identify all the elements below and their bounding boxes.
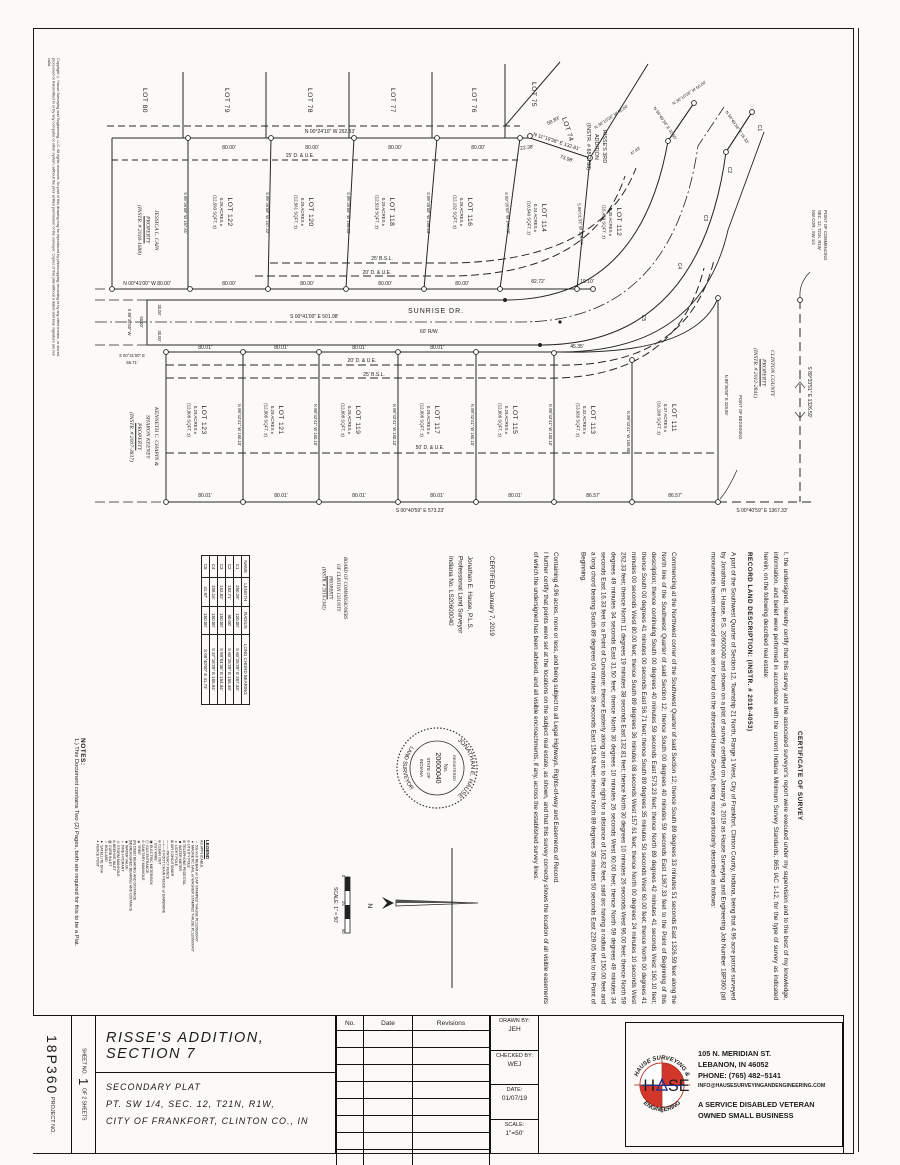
legend-item-label: GAS ENTRANCE [145, 845, 149, 873]
legend-item-label: TREE [137, 845, 141, 855]
street-bearing: S 00°41'00" E 501.98' [290, 314, 339, 320]
pob-label: POINT OF BEGINNING [738, 395, 743, 439]
dim: 80.01' [274, 493, 288, 499]
side-bearing: N 89°42'41" W 160.10' [313, 404, 318, 446]
neighbor-lot: LOT 77 [389, 88, 396, 113]
legend-symbol-icon: ▣ [149, 840, 153, 844]
risses-3rd-addition-label: RISSE'S 3RD ADDITION (INSTR. # 68-2788) [572, 92, 608, 202]
curve-length: 182.71' [226, 578, 234, 607]
date-cell: DATE:01/07/19 [491, 1085, 538, 1120]
easement-label: 15' D. & U.E. [286, 153, 315, 159]
legend-symbol-icon: ▼ [100, 840, 104, 844]
plat-sheet: Copyright © Hause Surveying and Engineer… [0, 0, 900, 1165]
street-name: SUNRISE DR. [408, 308, 464, 315]
sheet-label: SHEET NO. [81, 1048, 87, 1075]
revision-row [337, 1116, 490, 1133]
legend-item-label: ELECTRIC METER/BOX [149, 845, 153, 885]
dim: 47.83' [629, 145, 641, 156]
lot-number: LOT 111 [670, 404, 677, 432]
neighbor-lot: LOT 76 [470, 88, 477, 113]
dim: 58.83' [546, 115, 561, 127]
lot-sqft: (15,459 SQFT. ±) [602, 205, 607, 239]
side-bearing: S 89°36'08" W 156.83' [346, 192, 351, 234]
legend-symbol-icon: ⁕ [96, 840, 100, 843]
upper-lot-labels: LOT 1220.28 ACRES ±(12,593 SQFT. ±) LOT … [213, 195, 623, 239]
legend-item: —+— 6 FOOT CHAIN FENCE w/ BARBWIRE [161, 840, 165, 972]
hause-logo-icon: HAUSE SURVEYING & ENGINEERING H SE [628, 1051, 696, 1119]
company-logo: HAUSE SURVEYING & ENGINEERING H SE [626, 1051, 698, 1119]
scale-label: SCALE: 1" = 50' [332, 887, 338, 923]
lot-sqft: (12,808 SQFT. ±) [264, 403, 269, 437]
company-street: 105 N. MERIDIAN ST. [698, 1048, 838, 1059]
drawing-location-1: PT. SW 1/4, SEC. 12, T21N, R1W, [106, 1096, 335, 1113]
rev-header-revisions: Revisions [413, 1016, 490, 1031]
curve-radius: 150.00' [202, 607, 210, 634]
lot-acres: 0.29 ACRES ± [347, 406, 352, 435]
curve-chord: S 60°25'28" E 207.33' [234, 634, 242, 705]
legend-item: ◫ GAS ENTRANCE [145, 840, 149, 972]
legend-item: ⊠ AIR CONDITIONER [170, 840, 174, 972]
drawn-by: JEH [491, 1026, 538, 1033]
lot-acres: 0.35 ACRES ± [608, 208, 613, 237]
legend-item-label: UTILITY POLE [186, 844, 190, 868]
curve-name: C4 [210, 556, 218, 578]
dim: 82.72' [531, 279, 545, 285]
dim: 80.00' [471, 145, 485, 151]
dim: 19.10' [580, 279, 594, 285]
dim: 80.00' [222, 281, 236, 287]
legend-item-label: BEEHIVE INLET [112, 844, 116, 871]
legend-item: (M) MEASURED BEARING AND DISTANCE [128, 840, 132, 972]
dim: N 59°49'34" E 16.33' [724, 110, 750, 145]
containing-certify: Containing 4.96 acres, more or less, and… [498, 552, 560, 1004]
legend-item: ◙ WATER METER [178, 840, 182, 972]
dim: 80.01' [198, 493, 212, 499]
legend-symbol-icon: ○ [195, 840, 199, 844]
legend-symbol-icon: ⊙ [141, 840, 145, 843]
lot-acres: 0.29 ACRES ± [381, 198, 386, 227]
board-of-commissioners-label: BOARD OF COMMISSIONERS OF CLINTON COUNTY… [310, 532, 348, 644]
top-dimensions: N 00°24'10" W 262.33' 80.00' 80.00' 80.0… [222, 115, 580, 276]
lot-sqft: (13,936 SQFT. ±) [576, 403, 581, 437]
legend-item-label: SANITARY MANHOLE [141, 844, 145, 880]
lot-number: LOT 122 [226, 197, 233, 226]
rev-header-no: No. [337, 1016, 364, 1031]
seal-number: 20600040 [434, 752, 441, 783]
legend-item: ▼ SATELLITE DISH [100, 840, 104, 972]
dim: 60.00' [139, 316, 144, 327]
seal-title: LAND SURVEYOR [401, 745, 414, 792]
legend-item-label: WATER METER [178, 845, 182, 871]
curve-length: 41.97' [202, 578, 210, 607]
owner-jessica-cain: JESSICA L. CAIN PROPERTY (INSTR. # 2018-… [126, 160, 160, 300]
legend-symbol-icon: ● [190, 840, 194, 844]
curve-chord: S 08°40'00" E 41.73' [202, 634, 210, 705]
revision-row [337, 1133, 490, 1150]
drawing-subtitle: SECONDARY PLAT [106, 1079, 335, 1096]
curve-length: 162.82' [218, 578, 226, 607]
neighbor-lot: LOT 79 [223, 88, 230, 113]
side-bearing: S 89°36'08" W 157.22' [265, 192, 270, 234]
revisions-table: No. Date Revisions [336, 1016, 491, 1153]
revision-row [337, 1150, 490, 1165]
record-description-title: RECORD LAND DESCRIPTION: (INSTR. # 2018-… [744, 552, 754, 1000]
legend-item-label: MEASURED BEARING AND DISTANCE [129, 846, 133, 911]
certificate-paragraph: I, the undersigned, hereby certify that … [760, 552, 790, 1000]
lot-number: LOT 113 [589, 406, 596, 435]
lower-top-dimensions: 80.01' 80.01' 80.01' 80.01' 45.35' 20' D… [198, 344, 584, 451]
dim: 86.57' [668, 493, 682, 499]
dim: 80.01' [508, 493, 522, 499]
legend-symbol-icon: (R) [133, 840, 137, 845]
legend-item-label: WATER VALVE [124, 845, 128, 870]
neighbor-lot: LOT 78 [306, 88, 313, 113]
scale-cell: SCALE:1"=50' [491, 1120, 538, 1154]
owner-clinton-county: CLINTON COUNTY PROPERTY (INSTR. # 2012-2… [744, 318, 776, 428]
lot-acres: 0.37 ACRES ± [663, 404, 668, 433]
legend-item: ♆ FIRE HYDRANT [120, 840, 124, 972]
scale-value: 1"=50' [491, 1130, 538, 1137]
dim: N 00°24'10" W 262.33' [305, 129, 355, 135]
lot-acres: 0.28 ACRES ± [459, 198, 464, 227]
lot-number: LOT 115 [511, 406, 518, 435]
legend-item-label: DEED BEARING AND DISTANCE [133, 846, 137, 900]
lot-number: LOT 118 [388, 198, 395, 227]
legend-subtitle: AS APPLICABLE [200, 840, 204, 972]
dim: 80.00' [455, 281, 469, 287]
lot-number: LOT 119 [354, 406, 361, 435]
drawing-location-2: CITY OF FRANKFORT, CLINTON CO., IN [106, 1113, 335, 1130]
legend-item-label: CLEAN OUT [157, 844, 161, 865]
curve-label: C1 [756, 125, 762, 132]
easement-label: 20' D. & U.E. [348, 358, 377, 364]
easement-label: 25' B.S.L. [371, 256, 393, 262]
legend-item-label: MAGNETIC NAIL w/ WASHER STAMPED "HAUSE P… [190, 845, 194, 952]
curve-table-row: C2 182.71' 90.00' S 60°25'28" E 155.49' [226, 556, 234, 705]
legend-title: LEGEND [205, 840, 210, 972]
lot-sqft: (12,529 SQFT. ±) [375, 195, 380, 229]
curve-label: C2 [726, 167, 732, 174]
notes-title: NOTES: [79, 738, 86, 1012]
surveyor-license: Indiana No. LS20600040 [446, 556, 455, 756]
sheet-number: 1 [76, 1078, 91, 1085]
drawn-checked-cell: DRAWN BY:JEH CHECKED BY:WEJ DATE:01/07/1… [491, 1016, 539, 1153]
scale-bar: 0 25 50 SCALE: 1" = 50' [332, 875, 350, 934]
drawing-title-cell: RISSE'S ADDITION, SECTION 7 SECONDARY PL… [96, 1016, 336, 1153]
legend-symbol-icon: ♆ [120, 840, 124, 844]
legend-item: ● MAGNETIC NAIL w/ WASHER STAMPED "HAUSE… [190, 840, 194, 972]
side-bearing: N 89°42'41" W 160.10' [392, 404, 397, 446]
certificate-title: CERTIFICATE OF SURVEY [794, 552, 804, 1000]
seal-no-label: No. [442, 764, 448, 773]
project-number-label: PROJECT NO. [49, 1097, 55, 1134]
drawn-by-cell: DRAWN BY:JEH [491, 1016, 538, 1051]
legend-symbol-icon: (M) [129, 840, 133, 845]
north-arrow-icon: N [366, 897, 478, 909]
revision-row [337, 1048, 490, 1065]
side-bearing: N 89°35'50" E 229.05' [724, 375, 729, 416]
legend-symbol-icon: ✶ [174, 840, 178, 844]
lot-sqft: (12,808 SQFT. ±) [341, 403, 346, 437]
legend-item-label: TELEPHONE PEDESTAL [182, 844, 186, 885]
dim: 80.00' [388, 145, 402, 151]
dim: N 59°49'34" E 31.50' [652, 106, 678, 141]
certified-date: CERTIFIED January 7, 2019 [484, 556, 496, 756]
legend-symbol-icon: ◎ [116, 840, 120, 844]
legend-symbol-icon: ◙ [178, 840, 182, 844]
upper-bottom-dimensions: N 00°41'00" W 80.00' 80.00' 80.00' 80.00… [123, 279, 593, 287]
side-bearing: S 89°01'33" W 129.04' [577, 203, 585, 245]
curve-chord: S 60°25'28" E 155.49' [226, 634, 234, 705]
legend-item-label: CURB INLET [108, 845, 112, 866]
street-labels: SUNRISE DR. 60' R/W S 00°41'00" E 501.98… [290, 308, 464, 335]
curve-table-row: C4 108.16' 150.00' S 37°18'28" E 105.84' [210, 556, 218, 705]
lot-acres: 0.28 ACRES ± [219, 198, 224, 227]
seal-state2: INDIANA [419, 759, 424, 777]
dim: S 89°35'50" W [127, 308, 132, 335]
lower-side-bearings: N 89°42'41" W 160.10' N 89°42'41" W 160.… [237, 375, 729, 454]
legend-symbol-icon: —··— [166, 840, 170, 850]
legend-symbol-icon: ⊠ [170, 840, 174, 843]
easement-label: 20' D. & U.E. [363, 270, 392, 276]
neighbor-lot: LOT 80 [141, 88, 148, 113]
legend-item-label: PRIVACY FENCE [166, 851, 170, 880]
neighbor-lot-labels: LOT 80 LOT 79 LOT 78 LOT 77 LOT 76 LOT 7… [141, 82, 574, 142]
dim: 80.00' [378, 281, 392, 287]
legend-symbol-icon: ⊘ [186, 840, 190, 843]
north-letter: N [366, 903, 373, 908]
legend-item: ▤ CURB INLET [108, 840, 112, 972]
company-box: HAUSE SURVEYING & ENGINEERING H SE 105 N… [625, 1022, 843, 1147]
curve-name: C1 [234, 556, 242, 578]
note-item: 1.) This Document contains Two (2) Pages… [73, 738, 79, 1012]
surveyor-signature-block: Jonathan E. Hause, P.L.S. Professional L… [446, 556, 474, 756]
svg-text:LAND SURVEYOR: LAND SURVEYOR [401, 745, 414, 792]
curve-chord: S 37°18'28" E 105.84' [210, 634, 218, 705]
veteran-line-2: OWNED SMALL BUSINESS [698, 1110, 838, 1121]
legend-item-label: AIR CONDITIONER [170, 844, 174, 876]
legend-item-label: LIGHT POLE [174, 845, 178, 866]
curve-table-row: C5 41.97' 150.00' S 08°40'00" E 41.73' [202, 556, 210, 705]
neighbor-lot: LOT 75 [530, 82, 537, 107]
veteran-line-1: A SERVICE DISABLED VETERAN [698, 1099, 838, 1110]
lot-sqft: (12,808 SQFT. ±) [420, 403, 425, 437]
curve-length: 250.28' [234, 578, 242, 607]
legend-item-label: 6 FOOT CHAIN FENCE w/ BARBWIRE [162, 850, 166, 913]
dim: 80.00' [305, 145, 319, 151]
curve-label: C3 [702, 215, 708, 222]
company-cell: HAUSE SURVEYING & ENGINEERING H SE 105 N… [539, 1016, 843, 1153]
dim: 80.01' [352, 345, 366, 351]
curve-col-header: RADIUS [242, 607, 250, 634]
legend-item: ⊛ BEEHIVE INLET [112, 840, 116, 972]
dim: 45.35' [570, 344, 584, 350]
legend-item: —··— PRIVACY FENCE [166, 840, 170, 972]
curve-chord: S 89°04'36" E 154.94' [218, 634, 226, 705]
dim: S 00°40'59" E 1367.33' [736, 508, 787, 514]
lot-number: LOT 116 [466, 198, 473, 227]
date-value: 01/07/19 [491, 1095, 538, 1102]
company-city: LEBANON, IN 46052 [698, 1059, 838, 1070]
containing-paragraph: Containing 4.96 acres, more or less, and… [550, 552, 560, 1004]
notes: NOTES: 1.) This Document contains Two (2… [38, 738, 86, 1012]
poc-line: SEC. 12, T21N, R1W [817, 210, 822, 250]
legend-symbol-icon: —+— [162, 840, 166, 849]
certificate-of-survey: CERTIFICATE OF SURVEY I, the undersigned… [686, 552, 804, 1000]
curve-col-header: NAME [242, 556, 250, 578]
surveyor-name: Jonathan E. Hause, P.L.S. [465, 556, 474, 756]
surveyor-title: Professional Land Surveyor [455, 556, 464, 756]
legend-item: ◎ STORM MANHOLE [116, 840, 120, 972]
lot-acres: 0.24 ACRES ± [533, 204, 538, 233]
street-rw: 60' R/W [420, 329, 438, 335]
lot-acres: 0.32 ACRES ± [582, 406, 587, 435]
side-bearing: S 89°35'50" W 144.08' [504, 192, 511, 234]
side-bearing: S 89°36'08" W 156.43' [426, 192, 431, 234]
lot-sqft: (12,808 SQFT. ±) [498, 403, 503, 437]
poc-line: NW COR., SW 1/4 [811, 210, 816, 245]
curve-radius: 150.00' [218, 607, 226, 634]
curve-col-header: LENGTH [242, 578, 250, 607]
company-email: INFO@HAUSESURVEYINGANDENGINEERING.COM [698, 1083, 838, 1089]
curve-radius: 120.00' [234, 607, 242, 634]
legend-symbol-icon: ○ [104, 840, 108, 844]
project-number-cell: 18P360 PROJECT NO. [33, 1016, 72, 1153]
legend-item-label: FENCE POST [96, 844, 100, 867]
dim: 80.01' [430, 345, 444, 351]
side-bearing: N 89°42'41" W 160.10' [237, 404, 242, 446]
curve-table-row: C3 162.82' 150.00' S 89°04'36" E 154.94' [218, 556, 226, 705]
side-bearing: N 89°42'41" W 165.90' [626, 411, 631, 453]
revision-row [337, 1082, 490, 1099]
curve-name: C5 [202, 556, 210, 578]
legend-item-label: STORM MANHOLE [116, 845, 120, 877]
side-bearing: N 89°42'41" W 160.10' [470, 404, 475, 446]
further-certify-paragraph: I further certify that points were set a… [530, 552, 550, 1004]
dim: S 00°40'59" E 573.23' [396, 508, 445, 514]
record-description-paragraph: A part of the Southwest Quarter of Secti… [708, 552, 738, 1000]
lot-number: LOT 123 [200, 405, 207, 434]
curve-name: C2 [226, 556, 234, 578]
legend-item-label: FIRE HYDRANT [120, 845, 124, 872]
dim: 80.01' [430, 493, 444, 499]
curve-radius: 150.00' [210, 607, 218, 634]
legend-symbol-icon: ◫ [145, 840, 149, 844]
dim: 22.38' [520, 144, 534, 151]
lot-sqft: (12,561 SQFT. ±) [294, 195, 299, 229]
seal-state: STATE OF [426, 757, 431, 779]
legend-symbol-icon: ⊞ [182, 840, 186, 843]
legend-symbol-icon: ⊕ [157, 840, 161, 843]
metes-and-bounds: Commencing at the Northwest corner of th… [568, 552, 678, 1004]
dim: 80.01' [198, 345, 212, 351]
dim: 80.01' [352, 493, 366, 499]
lot-acres: 0.29 ACRES ± [270, 406, 275, 435]
dim: 86.57' [586, 493, 600, 499]
easement-label: 50' D. & U.E. [416, 445, 445, 451]
owner-kenneth-chapin: KENNETH C. CHAPIN & SHARON KEENEY PROPER… [116, 362, 160, 512]
legend-item: ⁕ FENCE POST [95, 840, 99, 972]
lower-lot-labels: LOT 1230.29 ACRES ±(12,808 SQFT. ±) LOT … [187, 401, 678, 437]
easement-label: 25' B.S.L. [363, 372, 385, 378]
company-address: 105 N. MERIDIAN ST. LEBANON, IN 46052 PH… [698, 1048, 842, 1122]
legend: LEGEND AS APPLICABLE ○ 5/8-inch REBAR w/… [90, 840, 210, 972]
curve-label: C5 [640, 315, 646, 322]
curve-table-row: C1 250.28' 120.00' S 60°25'28" E 207.33' [234, 556, 242, 705]
lot-acres: 0.29 ACRES ± [193, 406, 198, 435]
lot-acres: 0.29 ACRES ± [426, 406, 431, 435]
legend-item: ✶ LIGHT POLE [174, 840, 178, 972]
sheet-of-label: OF 2 SHEETS [81, 1088, 87, 1121]
legend-item-label: BOLLARD [104, 845, 108, 862]
curve-col-header: LONG CHORD BEARING [242, 634, 250, 705]
legend-item: (R) DEED BEARING AND DISTANCE [133, 840, 137, 972]
lot-sqft: (12,593 SQFT. ±) [213, 195, 218, 229]
checked-by: WEJ [491, 1061, 538, 1068]
legend-symbol-icon: ↓ [153, 840, 157, 842]
lot-acres: 0.29 ACRES ± [300, 198, 305, 227]
seal-registered: REGISTERED [452, 755, 457, 781]
legend-item-label: 5/8-inch REBAR w/ CAP STAMPED "HAUSE PLS… [195, 845, 199, 942]
curve-table: NAME LENGTH RADIUS LONG CHORD BEARING C1… [158, 555, 250, 705]
dim: N 30°10'26" W 60.00' [671, 79, 707, 105]
dim: 80.00' [222, 145, 236, 151]
lot-sqft: (10,540 SQFT. ±) [527, 201, 532, 235]
legend-item-label: SATELLITE DISH [100, 845, 104, 873]
west-jog-dimensions: 30.00' 30.00' 60.00' S 89°35'50" W S 00°… [119, 304, 162, 365]
legend-symbol-icon: ❀ [137, 840, 141, 844]
company-phone: PHONE: (765) 482–5141 [698, 1070, 838, 1081]
legend-item: ⊙ SANITARY MANHOLE [141, 840, 145, 972]
drawing-title: RISSE'S ADDITION, SECTION 7 [96, 1016, 335, 1073]
dim: S 00°41'00" E [119, 353, 145, 358]
dim: 80.00' [300, 281, 314, 287]
checked-by-cell: CHECKED BY:WEJ [491, 1051, 538, 1086]
scale-tick: 50 [341, 929, 346, 934]
revision-row [337, 1031, 490, 1048]
legend-item: ⊞ TELEPHONE PEDESTAL [182, 840, 186, 972]
curve-name: C3 [218, 556, 226, 578]
scale-tick: 25 [341, 901, 346, 906]
legend-item-label: GUY WIRE [153, 843, 157, 861]
dim: 30.00' [157, 330, 162, 341]
dim: 30.00' [157, 304, 162, 315]
curve-length: 108.16' [210, 578, 218, 607]
legend-symbol-icon: ▤ [108, 840, 112, 844]
dim: 80.01' [274, 345, 288, 351]
lot-number: LOT 117 [433, 406, 440, 435]
title-block: 18P360 PROJECT NO. SHEET NO. 1 OF 2 SHEE… [33, 1015, 844, 1153]
project-number: 18P360 [44, 1035, 60, 1095]
legend-symbol-icon: ■ [124, 840, 128, 844]
side-bearing: S 89°36'08" W 157.61' [183, 192, 188, 234]
dim: S 89°33'51" E 1326.59' [806, 366, 812, 417]
curve-radius: 90.00' [226, 607, 234, 634]
side-bearing: N 89°42'41" W 160.10' [548, 404, 553, 446]
lot-number: LOT 112 [615, 208, 622, 237]
curve-label: C4 [676, 263, 682, 270]
rev-header-date: Date [364, 1016, 413, 1031]
lot-number: LOT 114 [540, 204, 547, 233]
legend-item: ↓ GUY WIRE [153, 840, 157, 972]
revision-row [337, 1099, 490, 1116]
sheet-number-cell: SHEET NO. 1 OF 2 SHEETS [72, 1016, 96, 1153]
legend-item: ▣ ELECTRIC METER/BOX [149, 840, 153, 972]
stub-bearings: N 30°10'26" W 96.00' N 59°49'34" E 31.50… [593, 79, 750, 156]
poc-line: POINT OF COMMENCING [823, 210, 828, 260]
lot-sqft: (12,808 SQFT. ±) [187, 403, 192, 437]
lower-bottom-dimensions: 80.01' 80.01' 80.01' 80.01' 80.01' 86.57… [198, 366, 812, 514]
